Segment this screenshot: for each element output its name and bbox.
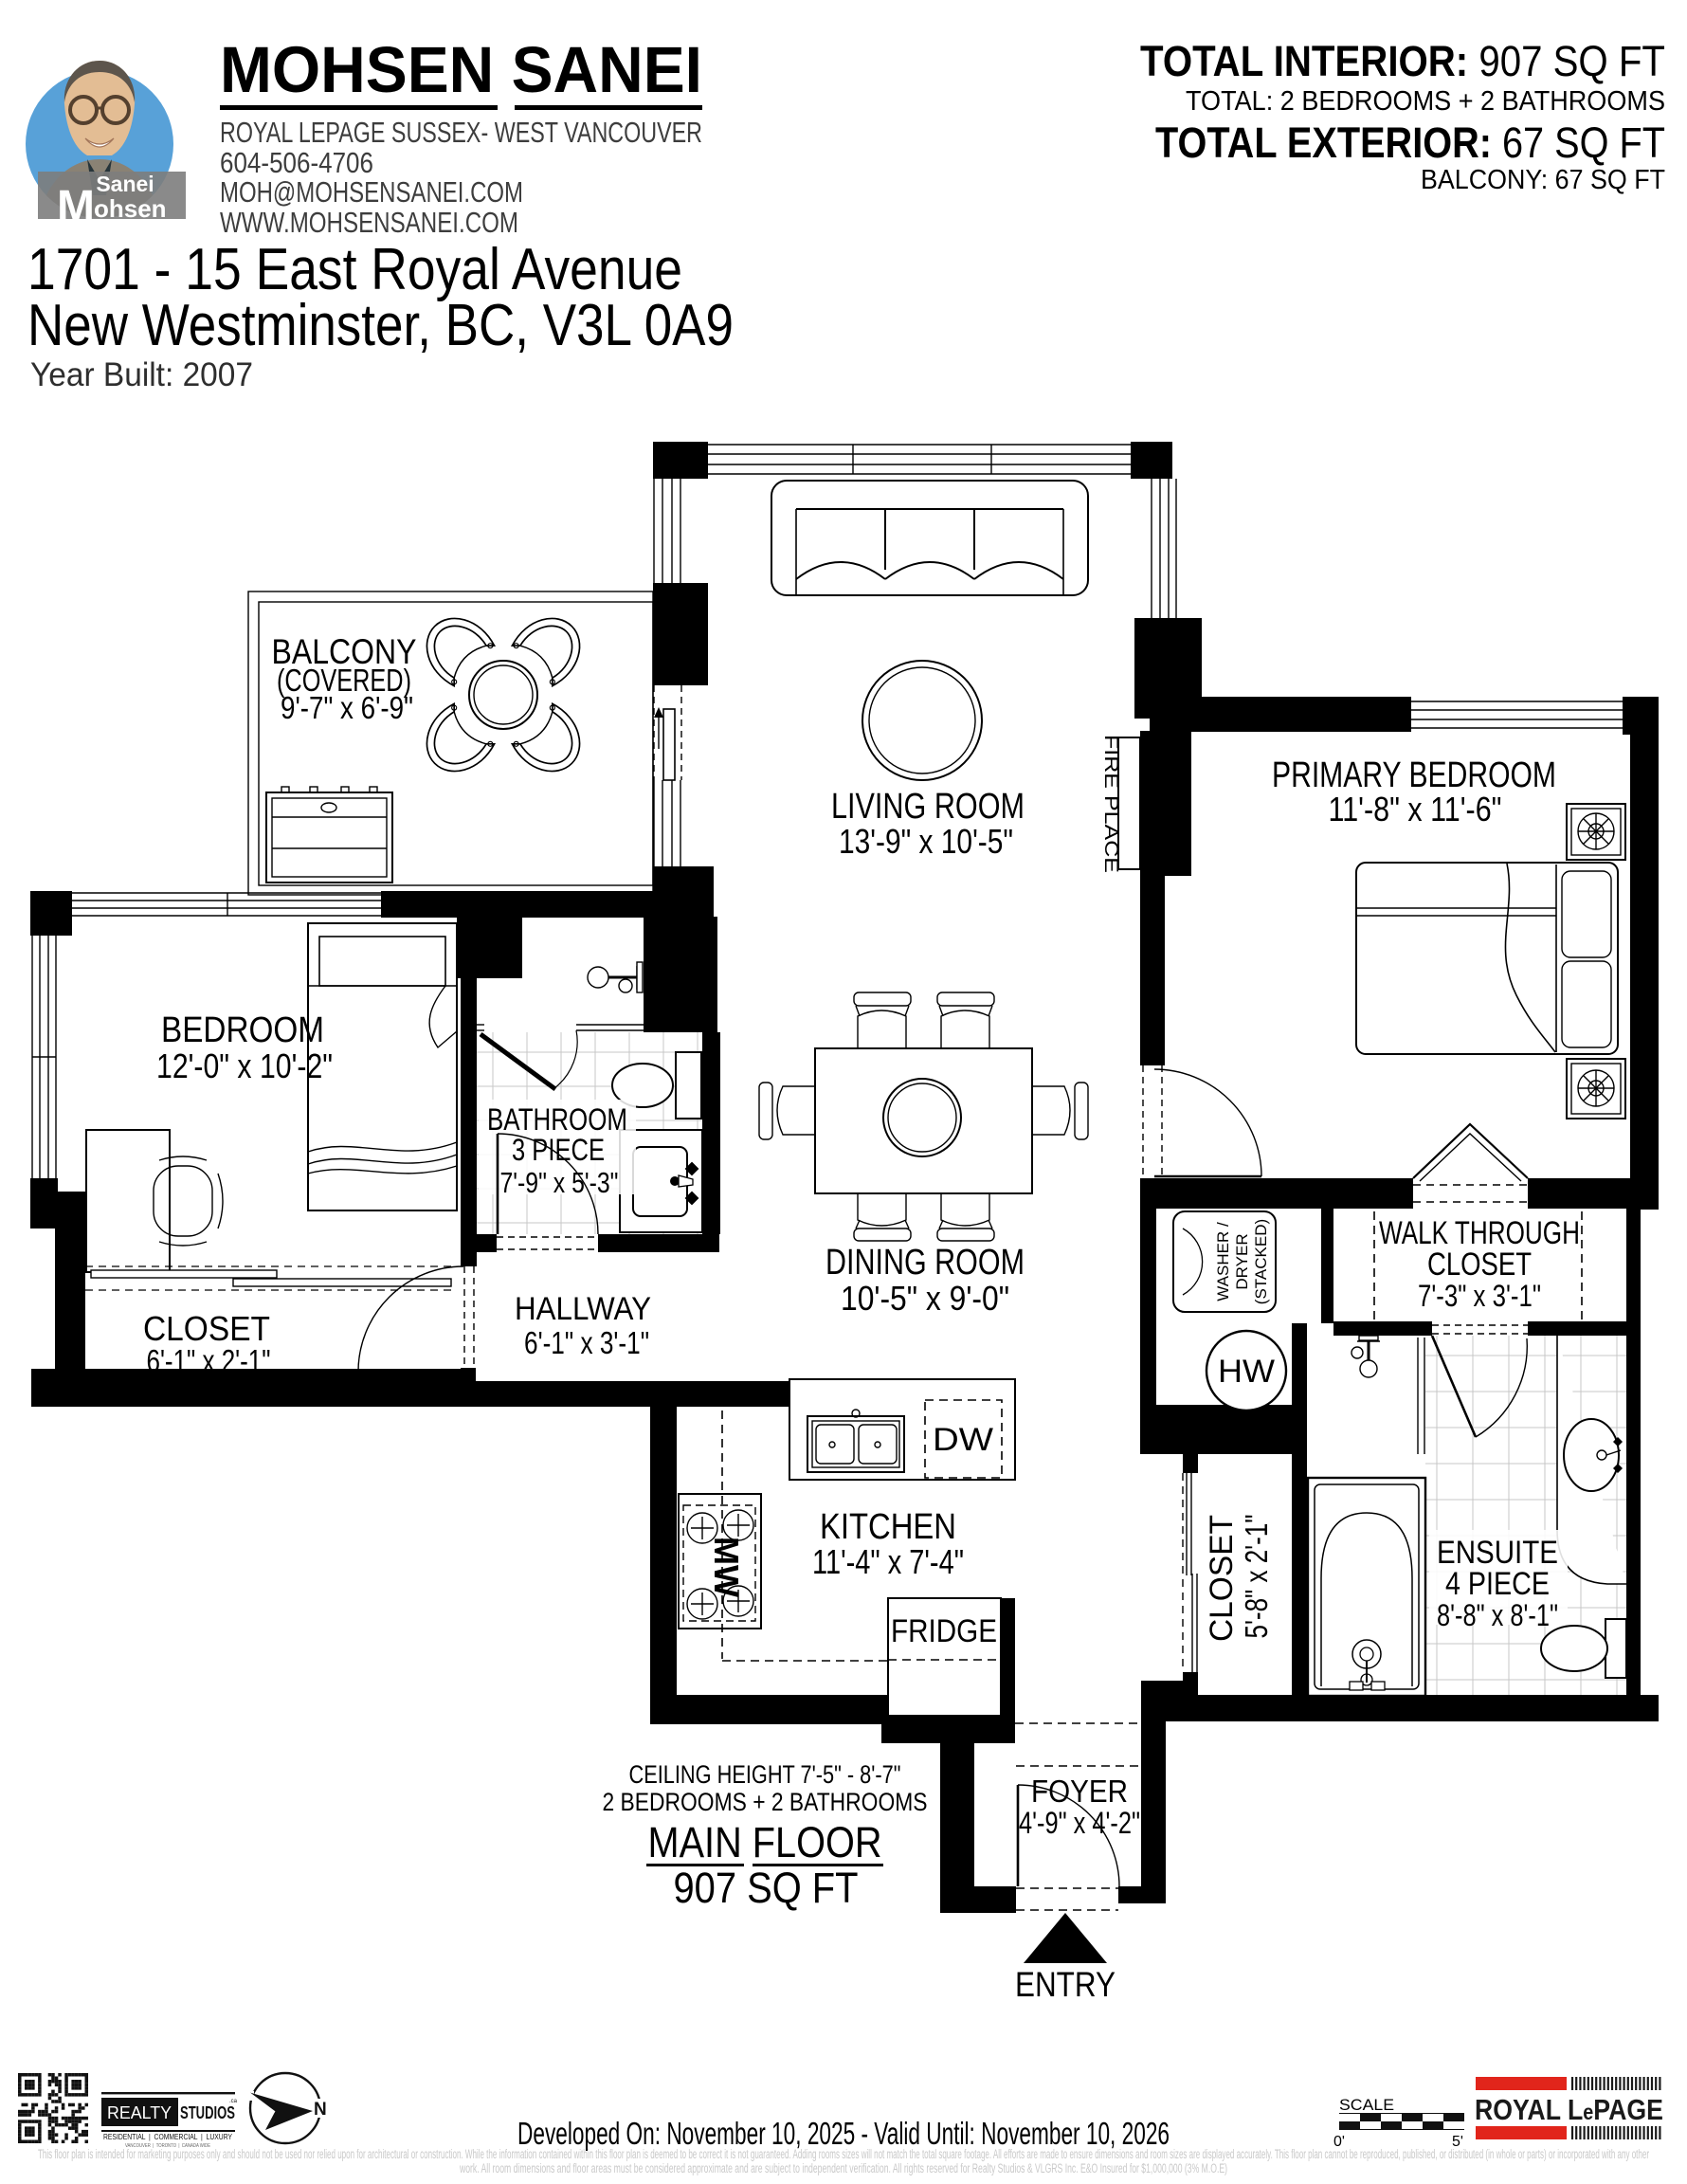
svg-text:ENTRY: ENTRY [1015, 1965, 1116, 2004]
svg-text:604-506-4706: 604-506-4706 [220, 146, 373, 179]
svg-text:5'-8" x 2'-1": 5'-8" x 2'-1" [1239, 1515, 1274, 1639]
svg-text:9'-7" x 6'-9": 9'-7" x 6'-9" [281, 690, 413, 725]
svg-text:ROYAL LEPAGE SUSSEX- WEST VANC: ROYAL LEPAGE SUSSEX- WEST VANCOUVER [220, 116, 702, 149]
svg-text:SCALE: SCALE [1339, 2096, 1394, 2114]
svg-text:10'-5" x 9'-0": 10'-5" x 9'-0" [841, 1279, 1009, 1318]
svg-text:ohsen: ohsen [94, 194, 167, 223]
svg-text:MAIN FLOOR: MAIN FLOOR [648, 1818, 882, 1866]
svg-text:WWW.MOHSENSANEI.COM: WWW.MOHSENSANEI.COM [220, 206, 518, 239]
svg-text:TOTAL INTERIOR: 907 SQ FT: TOTAL INTERIOR: 907 SQ FT [1140, 37, 1665, 85]
svg-text:6'-1" x 3'-1": 6'-1" x 3'-1" [524, 1325, 649, 1360]
svg-text:Year Built: 2007: Year Built: 2007 [30, 356, 253, 393]
svg-text:TOTAL EXTERIOR: 67 SQ FT: TOTAL EXTERIOR: 67 SQ FT [1155, 118, 1665, 167]
svg-text:DW: DW [933, 1422, 993, 1458]
svg-text:HALLWAY: HALLWAY [515, 1291, 651, 1327]
svg-text:.ca: .ca [229, 2099, 238, 2104]
svg-text:12'-0" x 10'-2": 12'-0" x 10'-2" [156, 1046, 333, 1085]
svg-text:CEILING HEIGHT 7'-5" - 8'-7": CEILING HEIGHT 7'-5" - 8'-7" [629, 1760, 901, 1789]
svg-text:N: N [314, 2100, 327, 2120]
svg-text:FRIDGE: FRIDGE [891, 1613, 997, 1649]
svg-text:BEDROOM: BEDROOM [161, 1010, 324, 1050]
svg-text:New Westminster, BC, V3L 0A9: New Westminster, BC, V3L 0A9 [27, 293, 734, 358]
svg-text:This floor plan is intended fo: This floor plan is intended for marketin… [38, 2147, 1649, 2161]
svg-text:6'-1" x 2'-1": 6'-1" x 2'-1" [147, 1343, 271, 1378]
svg-text:CLOSET: CLOSET [1427, 1247, 1532, 1283]
svg-text:RESIDENTIAL | COMMERCIAL |: RESIDENTIAL | COMMERCIAL | LUXURY [103, 2133, 233, 2141]
svg-text:REALTY: REALTY [107, 2103, 172, 2122]
svg-text:M: M [57, 182, 95, 232]
svg-text:4'-9" x 4'-2": 4'-9" x 4'-2" [1019, 1806, 1140, 1840]
svg-text:11'-4" x 7'-4": 11'-4" x 7'-4" [812, 1542, 964, 1581]
svg-text:DINING ROOM: DINING ROOM [825, 1243, 1025, 1283]
svg-text:HW: HW [1218, 1354, 1275, 1390]
svg-text:BALCONY: 67 SQ FT: BALCONY: 67 SQ FT [1421, 165, 1665, 195]
svg-text:TOTAL: 2 BEDROOMS + 2 BATHROOM: TOTAL: 2 BEDROOMS + 2 BATHROOMS [1186, 86, 1665, 117]
svg-text:CLOSET: CLOSET [143, 1309, 270, 1348]
svg-text:7'-3" x 3'-1": 7'-3" x 3'-1" [1418, 1279, 1541, 1313]
svg-text:4 PIECE: 4 PIECE [1445, 1566, 1550, 1602]
svg-text:Developed On: November 10, 202: Developed On: November 10, 2025 - Valid … [517, 2116, 1170, 2151]
svg-text:FIRE PLACE: FIRE PLACE [1100, 735, 1121, 873]
svg-text:WASHER /: WASHER / [1214, 1222, 1232, 1301]
svg-text:KITCHEN: KITCHEN [820, 1507, 956, 1547]
svg-text:LIVING ROOM: LIVING ROOM [831, 787, 1025, 827]
svg-text:CLOSET: CLOSET [1204, 1515, 1240, 1642]
svg-text:Sanei: Sanei [96, 172, 154, 196]
svg-text:STUDIOS: STUDIOS [180, 2103, 235, 2122]
svg-text:work. All room dimensions and: work. All room dimensions and floor area… [459, 2161, 1227, 2175]
svg-text:MW: MW [707, 1537, 746, 1597]
svg-text:8'-8" x 8'-1": 8'-8" x 8'-1" [1437, 1598, 1558, 1632]
svg-text:ROYAL LePAGE: ROYAL LePAGE [1475, 2093, 1663, 2126]
svg-text:FOYER: FOYER [1031, 1774, 1128, 1809]
svg-text:BATHROOM: BATHROOM [487, 1102, 627, 1137]
svg-text:7'-9" x 5'-3": 7'-9" x 5'-3" [500, 1166, 619, 1199]
svg-text:2 BEDROOMS + 2 BATHROOMS: 2 BEDROOMS + 2 BATHROOMS [603, 1788, 928, 1816]
svg-text:MOHSEN SANEI: MOHSEN SANEI [220, 33, 702, 106]
svg-text:MOH@MOHSENSANEI.COM: MOH@MOHSENSANEI.COM [220, 175, 523, 209]
svg-text:11'-8" x 11'-6": 11'-8" x 11'-6" [1329, 790, 1502, 828]
svg-text:(STACKED): (STACKED) [1252, 1219, 1270, 1304]
svg-text:13'-9" x 10'-5": 13'-9" x 10'-5" [839, 822, 1013, 861]
svg-text:DRYER: DRYER [1233, 1233, 1251, 1289]
svg-text:907 SQ FT: 907 SQ FT [674, 1864, 859, 1912]
